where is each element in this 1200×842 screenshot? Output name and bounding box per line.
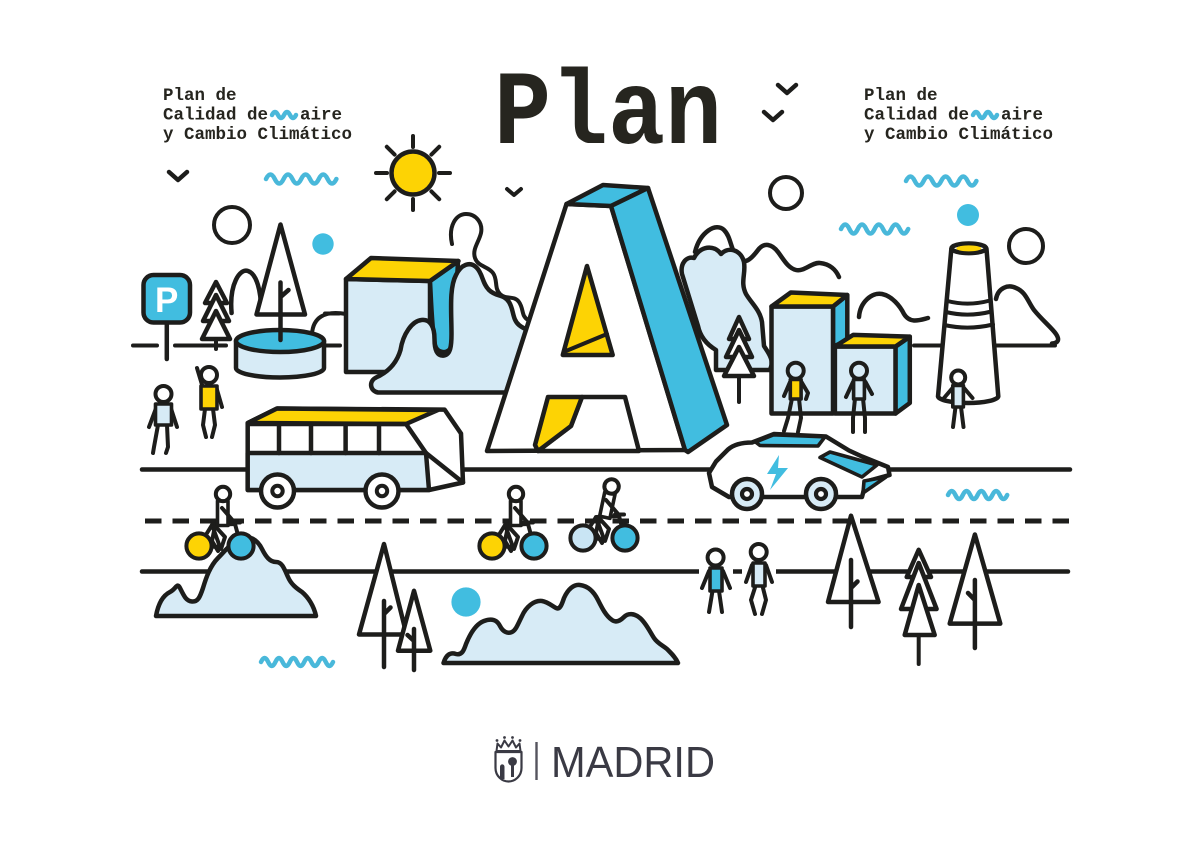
svg-text:Calidad de: Calidad de [864,106,969,126]
svg-text:aire: aire [1001,106,1043,126]
svg-text:Calidad de: Calidad de [163,106,268,126]
svg-text:y Cambio Climático: y Cambio Climático [864,125,1053,145]
svg-text:P: P [155,281,178,320]
svg-text:y Cambio Climático: y Cambio Climático [163,125,352,145]
svg-text:aire: aire [300,106,342,126]
svg-text:Plan de: Plan de [163,86,237,106]
svg-text:MADRID: MADRID [551,738,715,787]
svg-text:Plan: Plan [494,55,722,175]
svg-text:Plan de: Plan de [864,86,938,106]
